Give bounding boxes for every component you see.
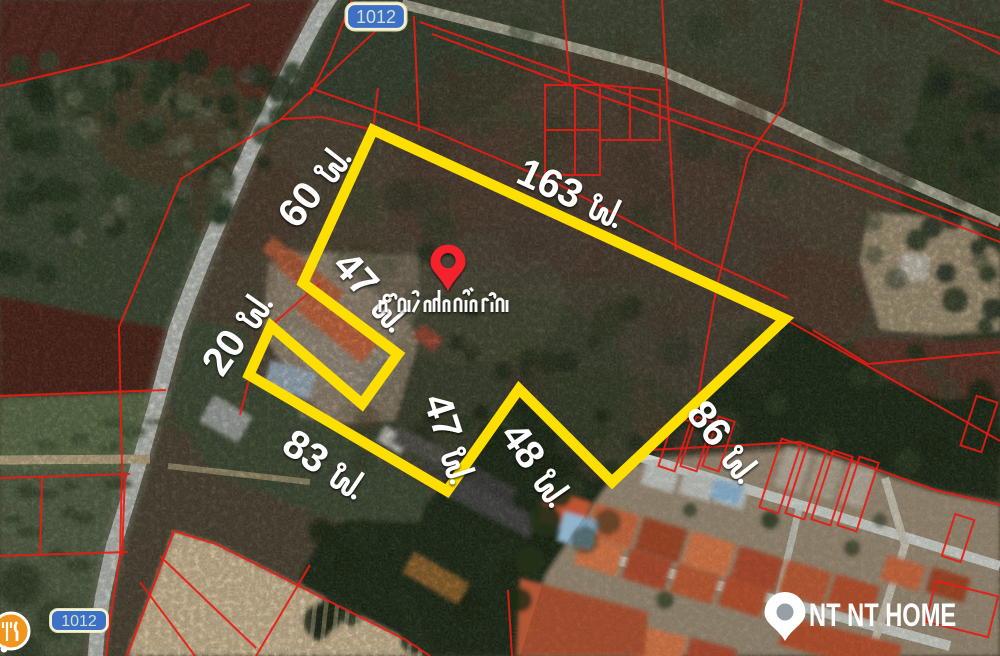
svg-text:1012: 1012 — [61, 613, 97, 630]
svg-text:1012: 1012 — [356, 7, 396, 27]
svg-text:NT NT HOME: NT NT HOME — [809, 598, 956, 633]
